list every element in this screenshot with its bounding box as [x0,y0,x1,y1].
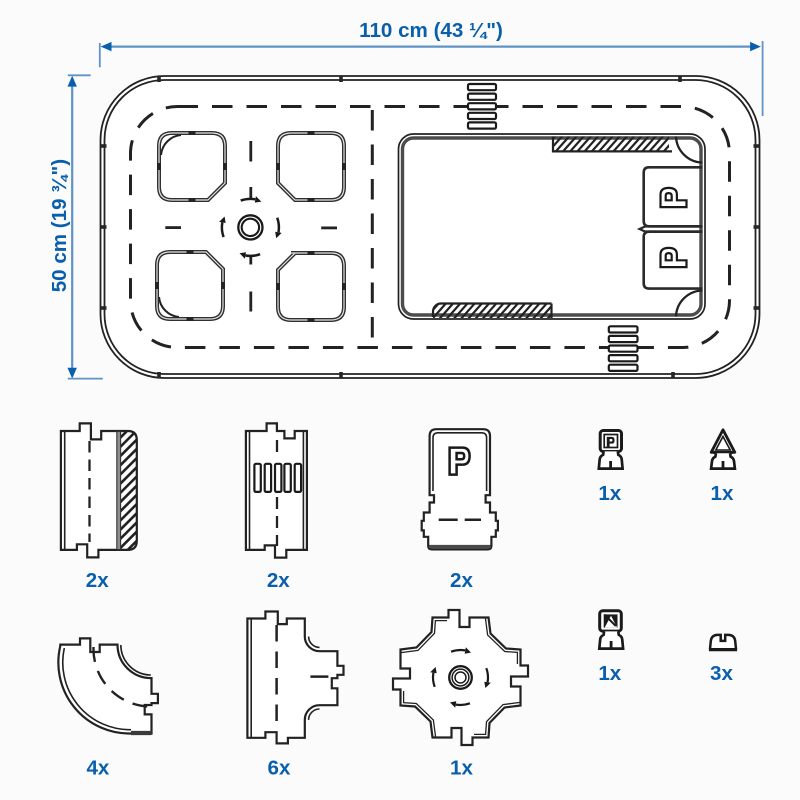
svg-text:1x: 1x [450,757,473,780]
svg-text:6x: 6x [268,757,291,780]
svg-text:4x: 4x [86,757,109,780]
svg-text:2x: 2x [267,569,290,592]
svg-text:50 cm (19 ¾"): 50 cm (19 ¾") [48,159,71,292]
svg-text:2x: 2x [450,569,473,592]
svg-text:1x: 1x [598,482,621,505]
svg-text:1x: 1x [598,662,621,685]
svg-text:110 cm (43 ¼"): 110 cm (43 ¼") [359,19,503,42]
svg-text:3x: 3x [710,662,733,685]
svg-text:2x: 2x [86,569,109,592]
svg-text:1x: 1x [711,482,734,505]
